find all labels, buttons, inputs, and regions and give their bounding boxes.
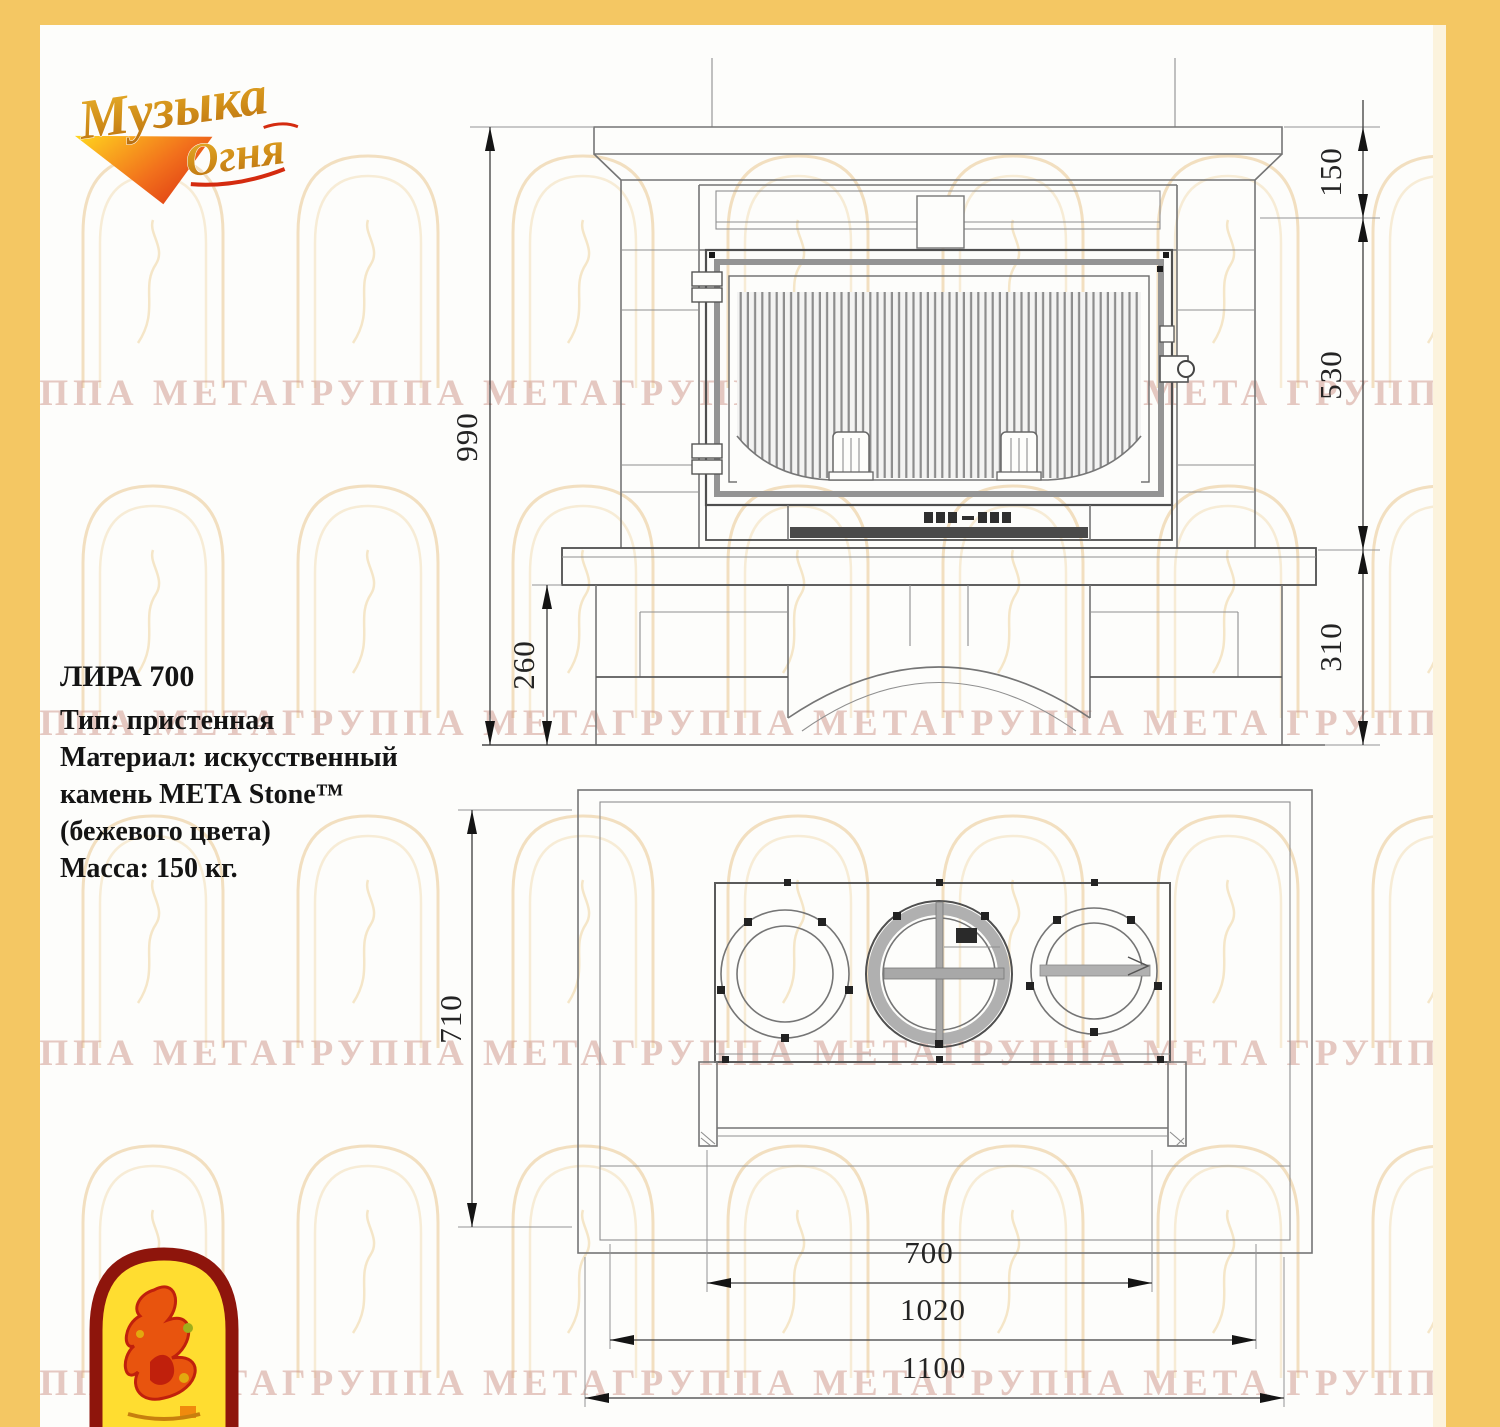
- page-border-top: [0, 0, 1500, 25]
- left-outlet-ring: [717, 910, 853, 1042]
- front-view: 990 260 150 530 310: [449, 58, 1380, 745]
- spec-material-3: (бежевого цвета): [60, 813, 500, 850]
- dim-260: 260: [506, 640, 541, 690]
- dim-310: 310: [1313, 622, 1348, 672]
- brand-logo: Музыка Огня: [52, 40, 352, 215]
- spec-material-1: Материал: искусственный: [60, 739, 500, 776]
- page-border-left: [0, 0, 40, 1427]
- top-view: 710 700 1020 1100: [433, 790, 1312, 1407]
- top-view-dimensions: 710 700 1020 1100: [433, 810, 1284, 1407]
- dim-990: 990: [449, 412, 484, 462]
- dim-530: 530: [1313, 350, 1348, 400]
- dim-1100: 1100: [902, 1350, 967, 1385]
- product-specs: ЛИРА 700 Тип: пристенная Материал: искус…: [60, 660, 500, 887]
- catalog-page: ГРУППА МЕТАГРУППА МЕТАГРУППА МЕТАГРУППА …: [0, 0, 1500, 1427]
- arch-emblem: [84, 1238, 244, 1427]
- flue-collar: [866, 901, 1012, 1048]
- firebox-foot: [997, 432, 1041, 480]
- firebox-foot: [829, 432, 873, 480]
- dim-150: 150: [1313, 147, 1348, 197]
- dim-710: 710: [433, 994, 468, 1044]
- dim-700: 700: [904, 1235, 954, 1270]
- spec-type: Тип: пристенная: [60, 702, 500, 739]
- brand-cast-mark: [924, 512, 1011, 523]
- border-inner-edge: [1433, 0, 1446, 1427]
- product-name: ЛИРА 700: [60, 660, 500, 694]
- spec-mass: Масса: 150 кг.: [60, 850, 500, 887]
- spec-material-2: камень МЕТА Stone™: [60, 776, 500, 813]
- page-border-right: [1446, 0, 1500, 1427]
- dim-1020: 1020: [900, 1292, 966, 1327]
- right-outlet-ring: [1026, 908, 1162, 1036]
